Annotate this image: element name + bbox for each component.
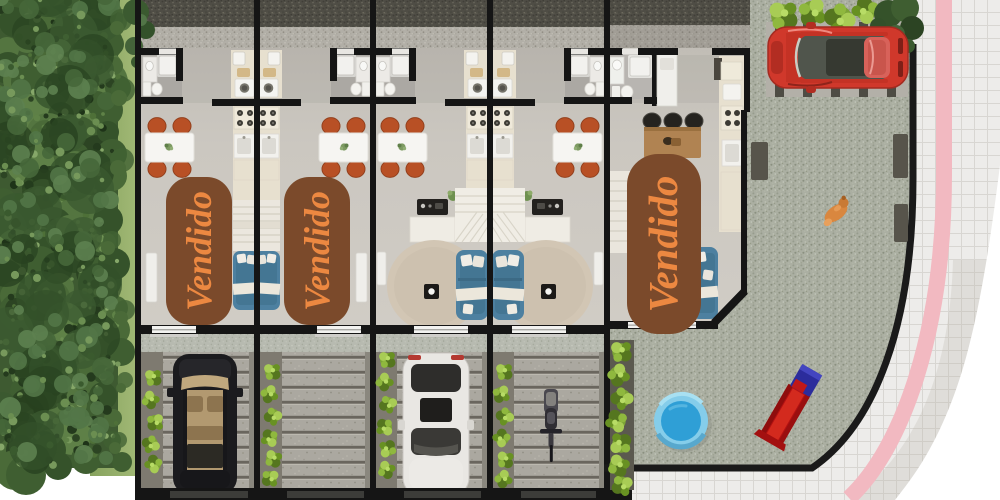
svg-text:Vendido: Vendido — [640, 176, 686, 313]
svg-text:Vendido: Vendido — [179, 191, 219, 311]
svg-text:Vendido: Vendido — [297, 191, 337, 311]
